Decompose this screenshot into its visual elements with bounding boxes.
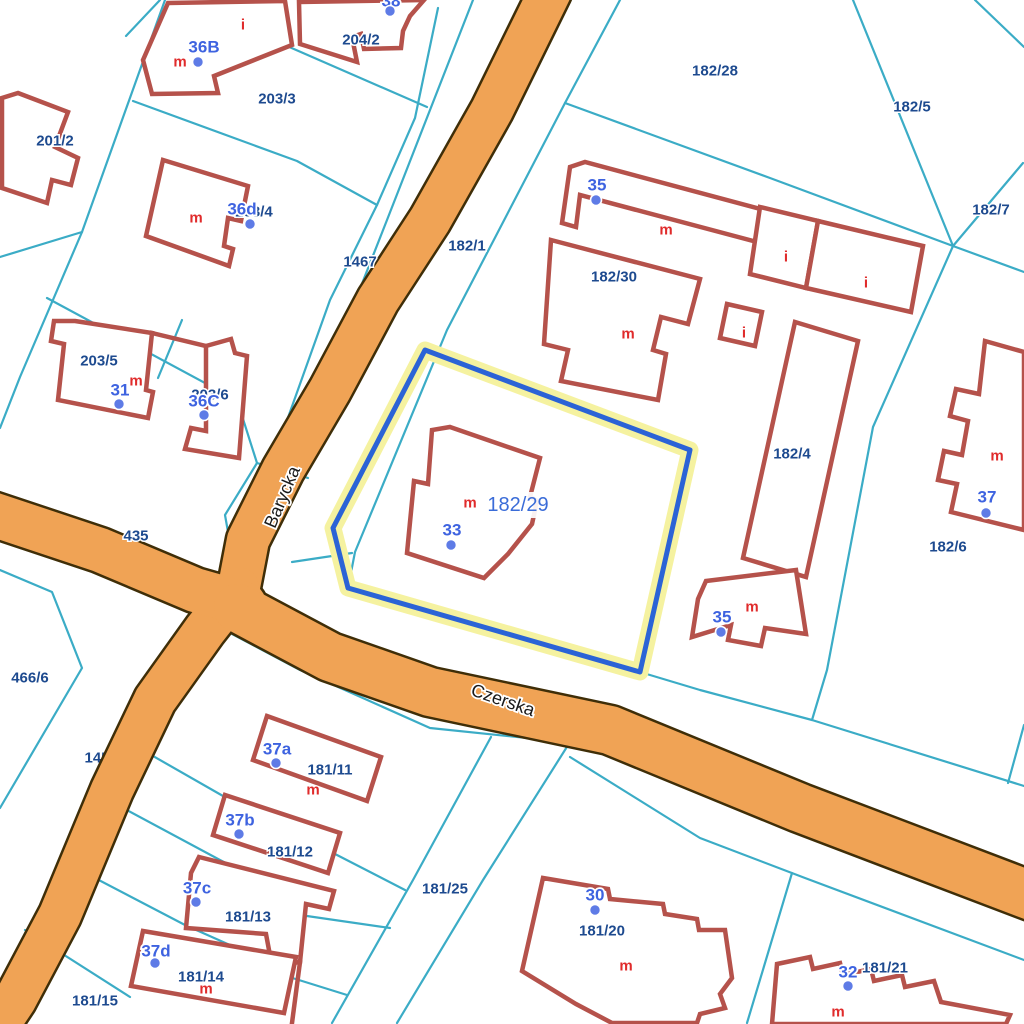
- address-label-36B: 36B: [188, 38, 219, 57]
- address-label-37c: 37c: [183, 879, 211, 898]
- parcel-label-182-4: 182/4: [773, 446, 811, 463]
- parcel-label-182-30: 182/30: [591, 269, 637, 286]
- parcel-label-182-29: 182/29: [487, 494, 548, 516]
- address-label-36d: 36d: [227, 200, 256, 219]
- use-label-m: m: [173, 54, 186, 71]
- parcel-label-182-7: 182/7: [972, 202, 1010, 219]
- parcel-label-181-25: 181/25: [422, 881, 468, 898]
- address-label-33: 33: [443, 521, 462, 540]
- use-label-m: m: [659, 222, 672, 239]
- address-dot-38: [385, 6, 396, 17]
- address-label-37b: 37b: [225, 811, 254, 830]
- address-dot-31: [114, 399, 125, 410]
- parcel-label-182-28: 182/28: [692, 63, 738, 80]
- building-31: [51, 321, 153, 418]
- use-label-m: m: [831, 1004, 844, 1021]
- map-canvas[interactable]: 20 145: [0, 0, 1024, 1024]
- parcel-label-1467: 1467: [343, 254, 376, 271]
- address-dot-37c: [191, 897, 202, 908]
- parcel-label-181-15: 181/15: [72, 993, 118, 1010]
- parcel-label-181-20: 181/20: [579, 923, 625, 940]
- use-label-m: m: [199, 981, 212, 998]
- use-label-m: m: [745, 599, 758, 616]
- address-dot-32: [843, 981, 854, 992]
- address-label-35-south: 35: [713, 608, 732, 627]
- use-label-m: m: [129, 373, 142, 390]
- address-dot-35-south: [716, 627, 727, 638]
- address-label-31: 31: [111, 381, 130, 400]
- parcel-label-201-2: 201/2: [36, 133, 74, 150]
- address-dot-37: [981, 508, 992, 519]
- address-dot-36B: [193, 57, 204, 68]
- address-label-32: 32: [839, 963, 858, 982]
- parcel-label-181-21: 181/21: [862, 960, 908, 977]
- address-dot-36C: [199, 410, 210, 421]
- address-dot-36d: [245, 219, 256, 230]
- use-label-m: m: [463, 495, 476, 512]
- road-west: [0, 514, 244, 604]
- address-dot-30: [590, 905, 601, 916]
- address-dot-37b: [234, 829, 245, 840]
- building-30: [522, 878, 732, 1023]
- parcel-label-181-11: 181/11: [307, 762, 352, 779]
- address-label-37: 37: [978, 488, 997, 507]
- use-label-m: m: [189, 210, 202, 227]
- parcel-label-182-1: 182/1: [448, 238, 486, 255]
- use-label-m: m: [619, 958, 632, 975]
- address-label-30: 30: [586, 886, 605, 905]
- building-wall-segment: [152, 333, 206, 346]
- use-label-m: m: [306, 782, 319, 799]
- use-label-i: i: [241, 17, 245, 34]
- address-label-37a: 37a: [263, 740, 292, 759]
- highlighted-parcel-label: 182/29: [478, 492, 558, 518]
- address-dot-37a: [271, 758, 282, 769]
- parcel-label-203-3: 203/3: [258, 91, 296, 108]
- parcel-label-181-13: 181/13: [225, 909, 271, 926]
- use-label-i: i: [784, 249, 788, 266]
- parcel-label-204-2: 204/2: [342, 32, 380, 49]
- use-label-i: i: [742, 325, 746, 342]
- parcel-label-435: 435: [123, 528, 148, 545]
- use-label-m: m: [621, 326, 634, 343]
- parcel-label-182-5: 182/5: [893, 99, 931, 116]
- address-dot-37d: [150, 958, 161, 969]
- parcel-label-466-6: 466/6: [11, 670, 49, 687]
- use-label-i: i: [864, 275, 868, 292]
- building-182-30: [544, 240, 700, 400]
- parcel-label-203-5: 203/5: [80, 353, 118, 370]
- address-label-36C: 36C: [188, 392, 219, 411]
- use-label-m: m: [990, 448, 1003, 465]
- building-37b: [213, 795, 340, 873]
- parcel-label-181-12: 181/12: [267, 844, 313, 861]
- address-label-35-north: 35: [588, 176, 607, 195]
- address-dot-33: [446, 540, 457, 551]
- parcel-label-182-6: 182/6: [929, 539, 967, 556]
- cadastral-map[interactable]: 20 145: [0, 0, 1024, 1024]
- building-i-2: [806, 221, 923, 312]
- address-dot-35-north: [591, 195, 602, 206]
